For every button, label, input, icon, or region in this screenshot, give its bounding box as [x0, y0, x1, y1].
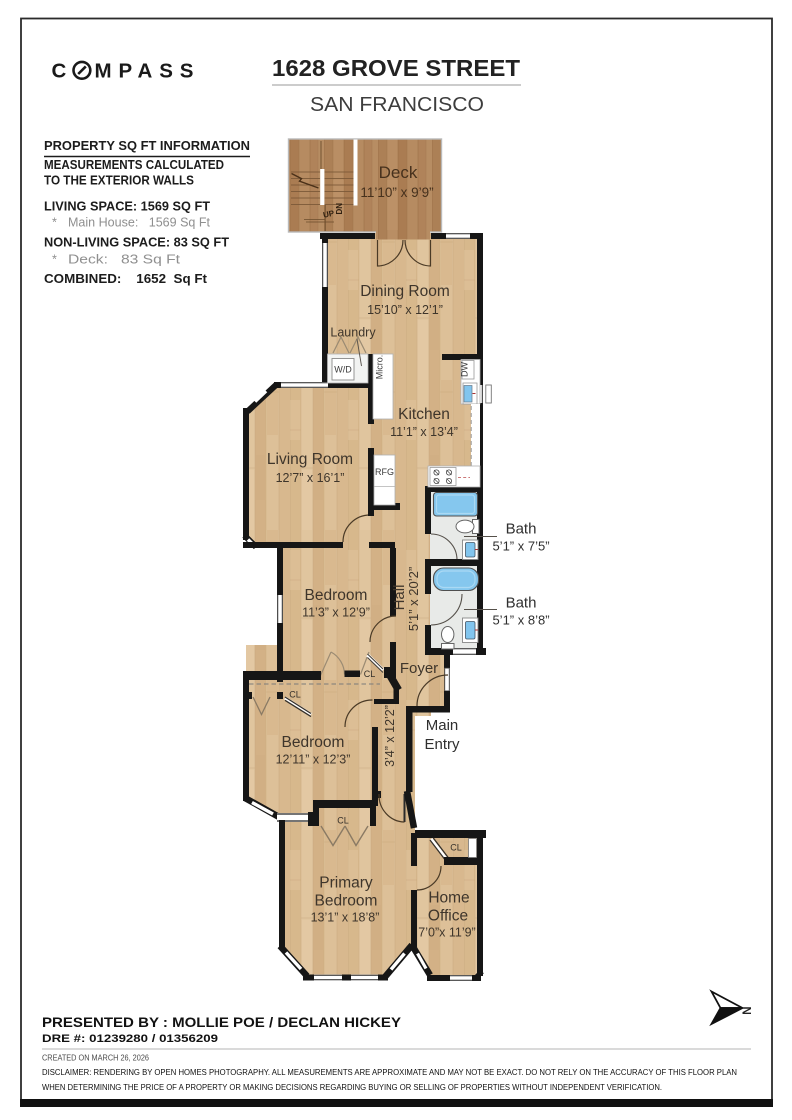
svg-text:Living Room: Living Room: [267, 451, 353, 468]
svg-text:Foyer: Foyer: [400, 660, 438, 677]
svg-text:Dining Room: Dining Room: [360, 283, 450, 300]
svg-text:RFG: RFG: [375, 467, 394, 477]
svg-text:SAN FRANCISCO: SAN FRANCISCO: [310, 93, 484, 116]
svg-text:Bedroom: Bedroom: [315, 893, 378, 910]
svg-text:*: *: [52, 253, 57, 267]
svg-text:7’0”x 11’9”: 7’0”x 11’9”: [418, 926, 475, 940]
svg-text:Bedroom: Bedroom: [305, 587, 368, 604]
svg-text:COMBINED: 1652 Sq Ft: COMBINED: 1652 Sq Ft: [44, 271, 208, 286]
svg-text:Main: Main: [426, 717, 459, 734]
svg-text:MEASUREMENTS CALCULATED: MEASUREMENTS CALCULATED: [44, 158, 224, 172]
svg-text:DRE #: 01239280 / 01356209: DRE #: 01239280 / 01356209: [42, 1033, 218, 1045]
svg-text:PROPERTY SQ FT INFORMATION: PROPERTY SQ FT INFORMATION: [44, 138, 250, 153]
svg-text:Bath: Bath: [506, 595, 537, 612]
svg-text:5’1” x 8’8”: 5’1” x 8’8”: [492, 613, 549, 628]
svg-text:PRESENTED BY : MOLLIE POE / DE: PRESENTED BY : MOLLIE POE / DECLAN HICKE…: [42, 1015, 401, 1030]
svg-text:12’7” x 16’1”: 12’7” x 16’1”: [276, 471, 345, 485]
svg-text:W/D: W/D: [334, 365, 352, 375]
svg-text:LIVING SPACE: 1569 SQ FT: LIVING SPACE: 1569 SQ FT: [44, 199, 210, 214]
svg-text:CL: CL: [364, 669, 376, 679]
svg-text:Deck: Deck: [379, 163, 418, 182]
svg-text:Entry: Entry: [424, 736, 460, 753]
svg-text:NON-LIVING SPACE: 83 SQ FT: NON-LIVING SPACE: 83 SQ FT: [44, 235, 229, 250]
svg-text:11’10” x 9’9”: 11’10” x 9’9”: [360, 185, 433, 200]
svg-text:MPASS: MPASS: [95, 60, 201, 83]
svg-text:Kitchen: Kitchen: [398, 406, 450, 423]
svg-text:Deck: 83 Sq Ft: Deck: 83 Sq Ft: [68, 253, 181, 267]
svg-text:5’1” x 7’5”: 5’1” x 7’5”: [492, 539, 549, 554]
svg-text:CL: CL: [337, 816, 349, 826]
svg-text:Bath: Bath: [506, 521, 537, 538]
svg-text:Bedroom: Bedroom: [282, 734, 345, 751]
svg-text:DW: DW: [460, 362, 470, 377]
svg-text:13’1” x 18’8”: 13’1” x 18’8”: [311, 911, 380, 925]
svg-text:12’11” x 12’3”: 12’11” x 12’3”: [276, 753, 351, 767]
svg-text:Home: Home: [428, 890, 469, 907]
svg-text:TO THE EXTERIOR WALLS: TO THE EXTERIOR WALLS: [44, 174, 194, 188]
svg-text:CREATED ON MARCH 26, 2026: CREATED ON MARCH 26, 2026: [42, 1053, 149, 1063]
svg-text:Office: Office: [428, 908, 468, 925]
svg-text:Primary: Primary: [319, 875, 373, 892]
svg-text:3’4” x 12’2”: 3’4” x 12’2”: [383, 705, 397, 767]
svg-text:Main House: 1569 Sq Ft: Main House: 1569 Sq Ft: [68, 216, 211, 230]
svg-text:CL: CL: [450, 843, 462, 853]
svg-text:1628 GROVE STREET: 1628 GROVE STREET: [272, 55, 520, 81]
svg-text:*: *: [52, 216, 57, 230]
svg-text:C: C: [52, 60, 74, 83]
svg-text:DN: DN: [335, 203, 344, 215]
svg-text:15’10” x 12’1”: 15’10” x 12’1”: [367, 303, 443, 317]
svg-text:Micro.: Micro.: [375, 355, 385, 380]
svg-text:5’1” x 20’2”: 5’1” x 20’2”: [406, 567, 421, 631]
svg-text:11’1” x 13’4”: 11’1” x 13’4”: [390, 425, 458, 439]
svg-text:WHEN DETERMINING THE PRICE OF: WHEN DETERMINING THE PRICE OF A PROPERTY…: [42, 1082, 662, 1092]
svg-text:N: N: [740, 1007, 752, 1015]
svg-text:Laundry: Laundry: [330, 326, 376, 340]
svg-text:DISCLAIMER: RENDERING BY OPEN: DISCLAIMER: RENDERING BY OPEN HOMES PHOT…: [42, 1067, 737, 1077]
svg-text:CL: CL: [289, 690, 301, 700]
svg-text:11’3” x 12’9”: 11’3” x 12’9”: [302, 606, 370, 620]
